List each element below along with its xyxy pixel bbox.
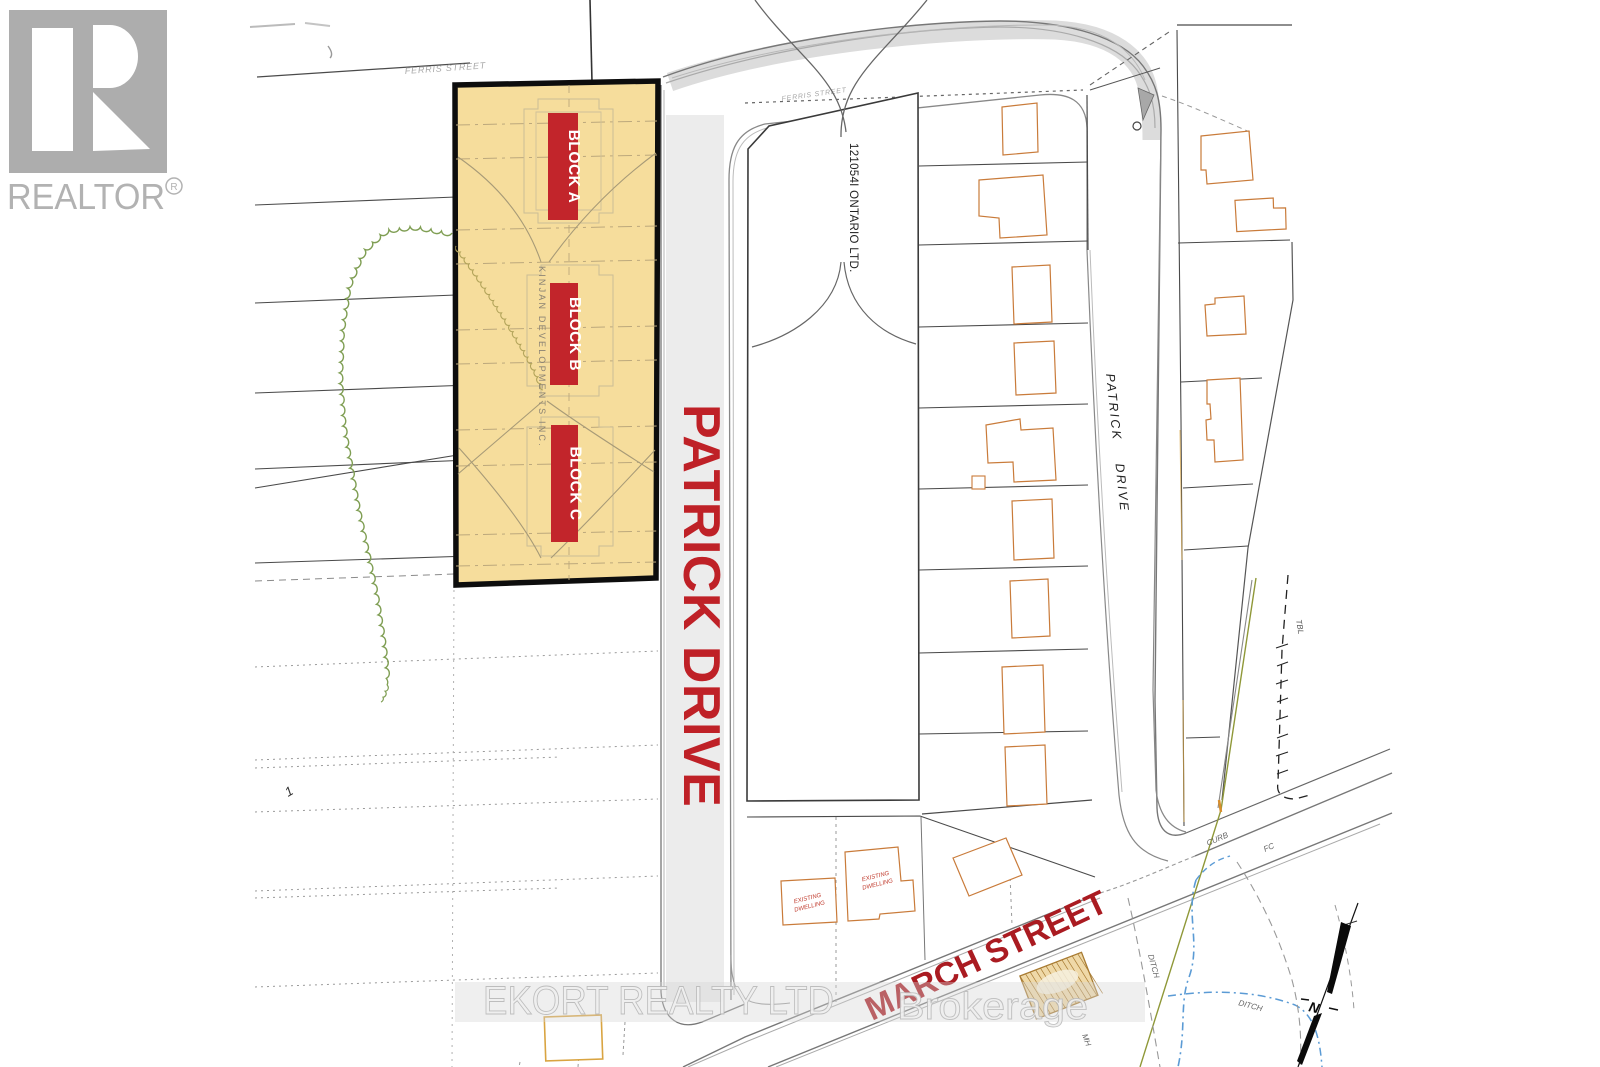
svg-text:PATRICK DRIVE: PATRICK DRIVE — [672, 404, 730, 807]
svg-text:121054I ONTARIO LTD.: 121054I ONTARIO LTD. — [847, 143, 859, 273]
svg-text:EKORT REALTY LTD: EKORT REALTY LTD — [483, 979, 834, 1023]
svg-text:BLOCK B: BLOCK B — [566, 297, 583, 371]
svg-text:KINJAN DEVELOPMENTS INC.: KINJAN DEVELOPMENTS INC. — [537, 266, 547, 448]
svg-text:R: R — [170, 182, 177, 193]
svg-text:Brokerage: Brokerage — [897, 986, 1088, 1028]
svg-text:BLOCK C: BLOCK C — [567, 446, 584, 520]
svg-text:REALTOR: REALTOR — [7, 176, 165, 217]
svg-text:BLOCK A: BLOCK A — [565, 130, 582, 204]
